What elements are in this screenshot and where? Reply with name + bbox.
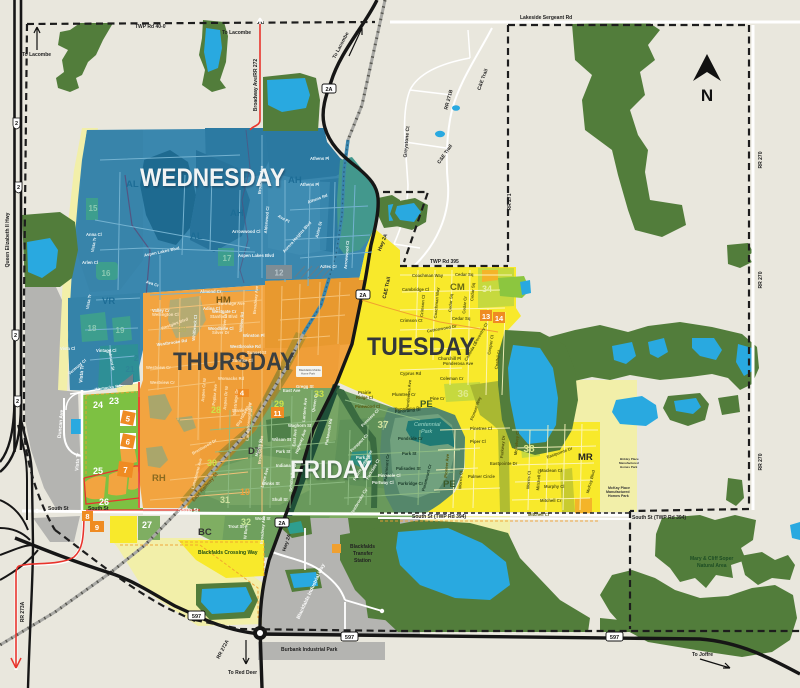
svg-text:30: 30 bbox=[207, 458, 217, 468]
svg-text:Westview Cr: Westview Cr bbox=[150, 380, 175, 385]
svg-text:Burbank Industrial Park: Burbank Industrial Park bbox=[281, 647, 338, 653]
svg-text:Blackfalds Crossing Way: Blackfalds Crossing Way bbox=[198, 550, 258, 556]
svg-text:38: 38 bbox=[523, 444, 535, 455]
svg-text:TWP Rd 40-0: TWP Rd 40-0 bbox=[135, 24, 166, 30]
svg-text:Park: Park bbox=[421, 429, 433, 435]
svg-text:25: 25 bbox=[93, 466, 103, 476]
svg-text:Gregg St: Gregg St bbox=[296, 384, 314, 389]
svg-text:Athens Pl: Athens Pl bbox=[310, 156, 329, 161]
svg-text:Aspen Lakes Blvd: Aspen Lakes Blvd bbox=[238, 253, 275, 258]
svg-text:Cedar Sq: Cedar Sq bbox=[452, 316, 471, 321]
svg-text:2: 2 bbox=[16, 399, 19, 405]
svg-text:RR 270: RR 270 bbox=[758, 271, 764, 288]
svg-text:21: 21 bbox=[126, 365, 135, 374]
svg-text:10: 10 bbox=[240, 487, 250, 497]
svg-text:Vista Cl: Vista Cl bbox=[60, 346, 75, 351]
svg-text:Maclean Cl: Maclean Cl bbox=[540, 468, 562, 473]
svg-text:Crimson Ct: Crimson Ct bbox=[400, 318, 423, 323]
svg-text:11: 11 bbox=[274, 409, 282, 418]
svg-text:2: 2 bbox=[134, 354, 139, 363]
svg-text:AH: AH bbox=[230, 208, 244, 219]
svg-text:2A: 2A bbox=[278, 521, 285, 527]
svg-text:Wool St: Wool St bbox=[255, 516, 271, 521]
svg-text:14: 14 bbox=[495, 314, 504, 323]
svg-text:Westbrooke Rd: Westbrooke Rd bbox=[230, 344, 261, 349]
svg-text:Vintage Cl: Vintage Cl bbox=[96, 348, 116, 353]
svg-text:Lakeside Sergeant Rd: Lakeside Sergeant Rd bbox=[520, 15, 572, 21]
svg-text:37: 37 bbox=[377, 420, 389, 431]
svg-text:2: 2 bbox=[15, 121, 18, 127]
svg-text:RR 273A: RR 273A bbox=[20, 601, 26, 622]
svg-text:20: 20 bbox=[178, 325, 187, 334]
svg-text:2: 2 bbox=[14, 333, 17, 339]
svg-text:8: 8 bbox=[85, 512, 89, 521]
svg-text:7: 7 bbox=[123, 466, 128, 475]
svg-text:AL: AL bbox=[190, 231, 203, 242]
svg-text:Transfer: Transfer bbox=[353, 551, 373, 557]
svg-text:Mitchell Cr: Mitchell Cr bbox=[528, 512, 550, 517]
svg-text:Pondside Cr: Pondside Cr bbox=[398, 436, 423, 441]
svg-text:RH: RH bbox=[152, 473, 166, 484]
svg-text:9: 9 bbox=[95, 523, 99, 532]
svg-text:Coleman Cr: Coleman Cr bbox=[440, 376, 464, 381]
svg-text:Cedar Sq: Cedar Sq bbox=[455, 272, 474, 277]
svg-text:Coachman Way: Coachman Way bbox=[412, 273, 444, 278]
svg-text:34: 34 bbox=[482, 284, 492, 294]
svg-text:Broadway Ave/RR 272: Broadway Ave/RR 272 bbox=[253, 59, 259, 112]
svg-text:Trout St: Trout St bbox=[228, 524, 244, 529]
svg-text:To Lacombe: To Lacombe bbox=[22, 52, 51, 58]
svg-text:Mary & Cliff Soper: Mary & Cliff Soper bbox=[690, 556, 733, 562]
svg-text:Shull St: Shull St bbox=[272, 497, 288, 502]
svg-text:Adina Cl: Adina Cl bbox=[203, 306, 220, 311]
svg-text:To Joffre: To Joffre bbox=[692, 652, 713, 658]
svg-text:Westview Cr: Westview Cr bbox=[146, 365, 171, 370]
svg-text:Pine Cr: Pine Cr bbox=[430, 396, 445, 401]
svg-text:18: 18 bbox=[88, 324, 97, 333]
svg-text:Murphy Cl: Murphy Cl bbox=[544, 484, 564, 489]
svg-text:Indiana St: Indiana St bbox=[276, 463, 297, 468]
svg-text:Athens Pl: Athens Pl bbox=[300, 182, 319, 187]
svg-text:597: 597 bbox=[610, 635, 619, 641]
svg-text:Arlen Cl: Arlen Cl bbox=[82, 260, 98, 265]
svg-text:19: 19 bbox=[116, 326, 125, 335]
svg-text:Wilson St: Wilson St bbox=[272, 437, 292, 442]
svg-text:BC: BC bbox=[198, 527, 212, 538]
svg-text:To Red Deer: To Red Deer bbox=[228, 670, 257, 676]
svg-text:597: 597 bbox=[192, 614, 201, 620]
svg-text:15: 15 bbox=[89, 204, 98, 213]
svg-text:Ponderosa Ave: Ponderosa Ave bbox=[443, 361, 474, 366]
svg-text:TWP Rd 395: TWP Rd 395 bbox=[430, 259, 459, 265]
svg-text:Cambridge Cl: Cambridge Cl bbox=[402, 287, 429, 292]
svg-text:12: 12 bbox=[275, 269, 284, 278]
svg-text:N: N bbox=[701, 86, 713, 105]
svg-text:Winston Pl: Winston Pl bbox=[243, 333, 265, 338]
svg-text:PE: PE bbox=[443, 479, 456, 490]
svg-text:Wellington Cl: Wellington Cl bbox=[152, 312, 179, 317]
svg-text:AL: AL bbox=[126, 179, 139, 190]
svg-text:Palisades St: Palisades St bbox=[396, 466, 421, 471]
svg-text:South St: South St bbox=[88, 506, 109, 512]
svg-text:24: 24 bbox=[93, 400, 103, 410]
svg-text:Park St: Park St bbox=[356, 455, 371, 460]
svg-text:Park St: Park St bbox=[276, 449, 291, 454]
svg-text:27: 27 bbox=[142, 520, 152, 530]
svg-text:Plumtree Cr: Plumtree Cr bbox=[392, 392, 416, 397]
svg-text:Natural Area: Natural Area bbox=[697, 563, 727, 569]
svg-text:Park St: Park St bbox=[402, 451, 417, 456]
svg-text:2A: 2A bbox=[359, 293, 366, 299]
svg-text:Ridge Cl: Ridge Cl bbox=[356, 395, 373, 400]
svg-text:2: 2 bbox=[17, 185, 20, 191]
svg-text:RR 270: RR 270 bbox=[758, 453, 764, 470]
svg-text:Womacks Rd: Womacks Rd bbox=[218, 376, 245, 381]
svg-text:31: 31 bbox=[220, 495, 230, 505]
svg-text:16: 16 bbox=[102, 269, 111, 278]
svg-text:RR 270: RR 270 bbox=[758, 151, 764, 168]
svg-text:Station: Station bbox=[354, 558, 371, 564]
svg-text:Blackfalds: Blackfalds bbox=[350, 544, 375, 550]
svg-text:29: 29 bbox=[274, 399, 284, 409]
svg-text:Queen Elizabeth II Hwy: Queen Elizabeth II Hwy bbox=[5, 212, 11, 267]
svg-text:South St (TWP Rd 394): South St (TWP Rd 394) bbox=[412, 514, 466, 520]
svg-text:36: 36 bbox=[457, 389, 469, 400]
svg-text:South St: South St bbox=[48, 506, 69, 512]
svg-text:Centennial: Centennial bbox=[414, 422, 441, 428]
svg-text:Arrowwood Cl: Arrowwood Cl bbox=[232, 229, 260, 234]
svg-text:23: 23 bbox=[109, 396, 119, 406]
svg-text:Waghorn St: Waghorn St bbox=[288, 423, 312, 428]
svg-text:CM: CM bbox=[450, 282, 465, 293]
svg-text:Piper Cl: Piper Cl bbox=[470, 439, 486, 444]
svg-text:Parkridge Cr: Parkridge Cr bbox=[398, 481, 424, 486]
svg-text:Cyprus Rd: Cyprus Rd bbox=[400, 371, 422, 376]
svg-text:Pinetree Cl: Pinetree Cl bbox=[470, 426, 492, 431]
svg-text:Almond Cr: Almond Cr bbox=[200, 289, 222, 294]
svg-text:South St (TWP Rd 394): South St (TWP Rd 394) bbox=[632, 515, 686, 521]
svg-text:VR: VR bbox=[102, 296, 115, 307]
svg-text:Eastpointe Dr: Eastpointe Dr bbox=[490, 461, 518, 466]
svg-text:Pinnacle Cl: Pinnacle Cl bbox=[378, 473, 401, 478]
svg-text:17: 17 bbox=[223, 254, 232, 263]
svg-text:MR: MR bbox=[578, 452, 593, 463]
svg-text:Aztec Cr: Aztec Cr bbox=[320, 264, 337, 269]
svg-text:Anna Cl: Anna Cl bbox=[86, 232, 102, 237]
svg-text:Homes Park: Homes Park bbox=[608, 494, 629, 498]
svg-text:Homes Park: Homes Park bbox=[620, 465, 638, 469]
svg-text:Sunset St: Sunset St bbox=[247, 350, 267, 355]
svg-text:Home Park: Home Park bbox=[301, 372, 316, 376]
svg-text:Sunrise Cl: Sunrise Cl bbox=[232, 358, 253, 363]
svg-text:597: 597 bbox=[345, 635, 354, 641]
svg-text:To Lacombe: To Lacombe bbox=[222, 30, 251, 36]
svg-text:Palmer Circle: Palmer Circle bbox=[468, 474, 495, 479]
svg-text:Sunridge Ave: Sunridge Ave bbox=[218, 301, 245, 306]
svg-text:RR 271: RR 271 bbox=[507, 193, 513, 210]
svg-text:13: 13 bbox=[482, 312, 490, 321]
svg-text:2A: 2A bbox=[325, 87, 332, 93]
svg-text:South St: South St bbox=[178, 508, 199, 514]
svg-text:Mitchell Cr: Mitchell Cr bbox=[540, 498, 562, 503]
